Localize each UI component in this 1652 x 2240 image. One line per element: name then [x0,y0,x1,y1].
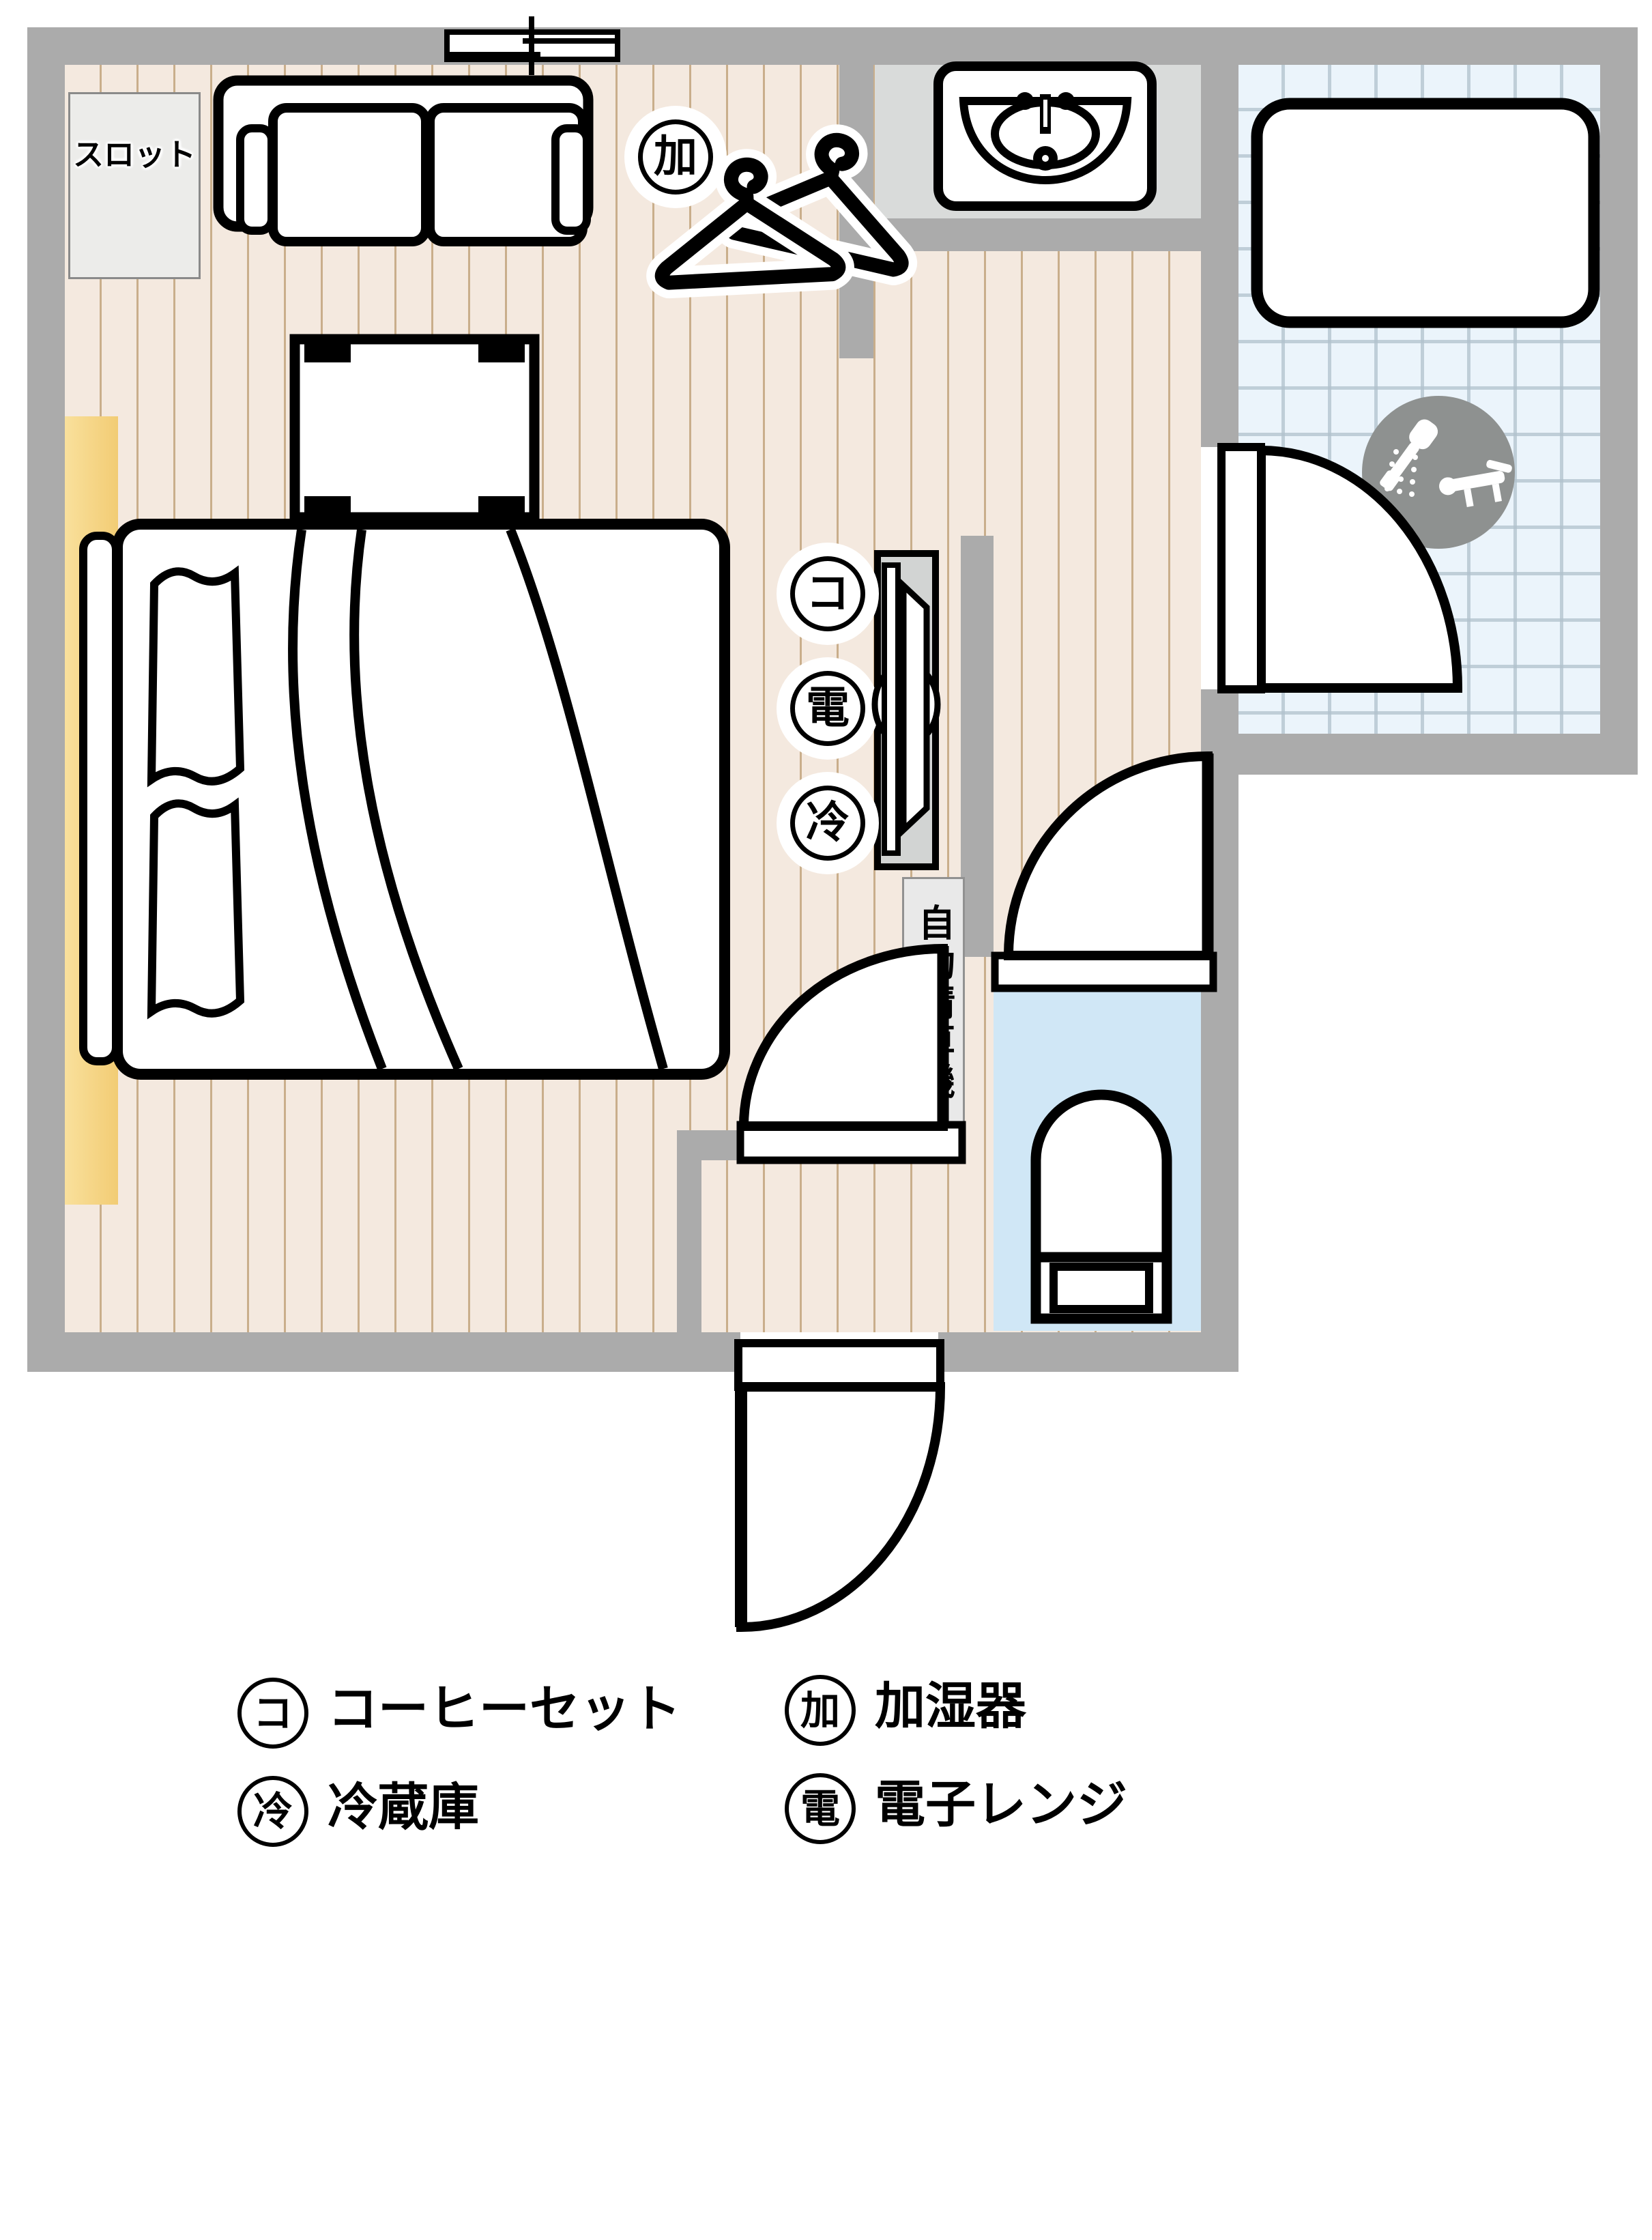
plan-overlay [0,0,1652,2240]
double-bed [83,524,725,1074]
floor-plan: スロット 加 コ 電 冷 自動精算機 [0,0,1652,2240]
bathtub [1257,104,1594,322]
legend-symbol-coffee: コ [237,1678,308,1749]
window-icon [447,16,618,75]
legend-symbol-microwave: 電 [785,1773,856,1844]
hanger-icon [656,120,925,283]
legend-symbol-humidifier: 加 [785,1675,856,1746]
table [295,339,534,517]
pillow [151,571,240,781]
bed-headboard [83,536,116,1061]
legend-label-humidifier: 加湿器 [875,1671,1026,1742]
entrance-door [738,1343,940,1627]
legend-label-coffee: コーヒーセット [328,1674,681,1744]
legend-symbol-humidifier-glyph: 加 [800,1691,840,1730]
toilet-door [995,753,1213,988]
pillow [151,803,240,1014]
legend-label-microwave: 電子レンジ [875,1769,1127,1840]
legend-symbol-microwave-glyph: 電 [800,1789,840,1828]
legend-symbol-fridge: 冷 [237,1776,308,1847]
legend-symbol-fridge-glyph: 冷 [253,1792,293,1831]
tv-icon [875,565,938,853]
sofa [218,81,588,242]
legend-label-fridge: 冷蔵庫 [328,1772,479,1843]
legend-symbol-coffee-glyph: コ [253,1693,293,1733]
toilet-icon [1036,1095,1167,1319]
bedroom-door [740,946,962,1160]
sink-icon [938,66,1152,206]
